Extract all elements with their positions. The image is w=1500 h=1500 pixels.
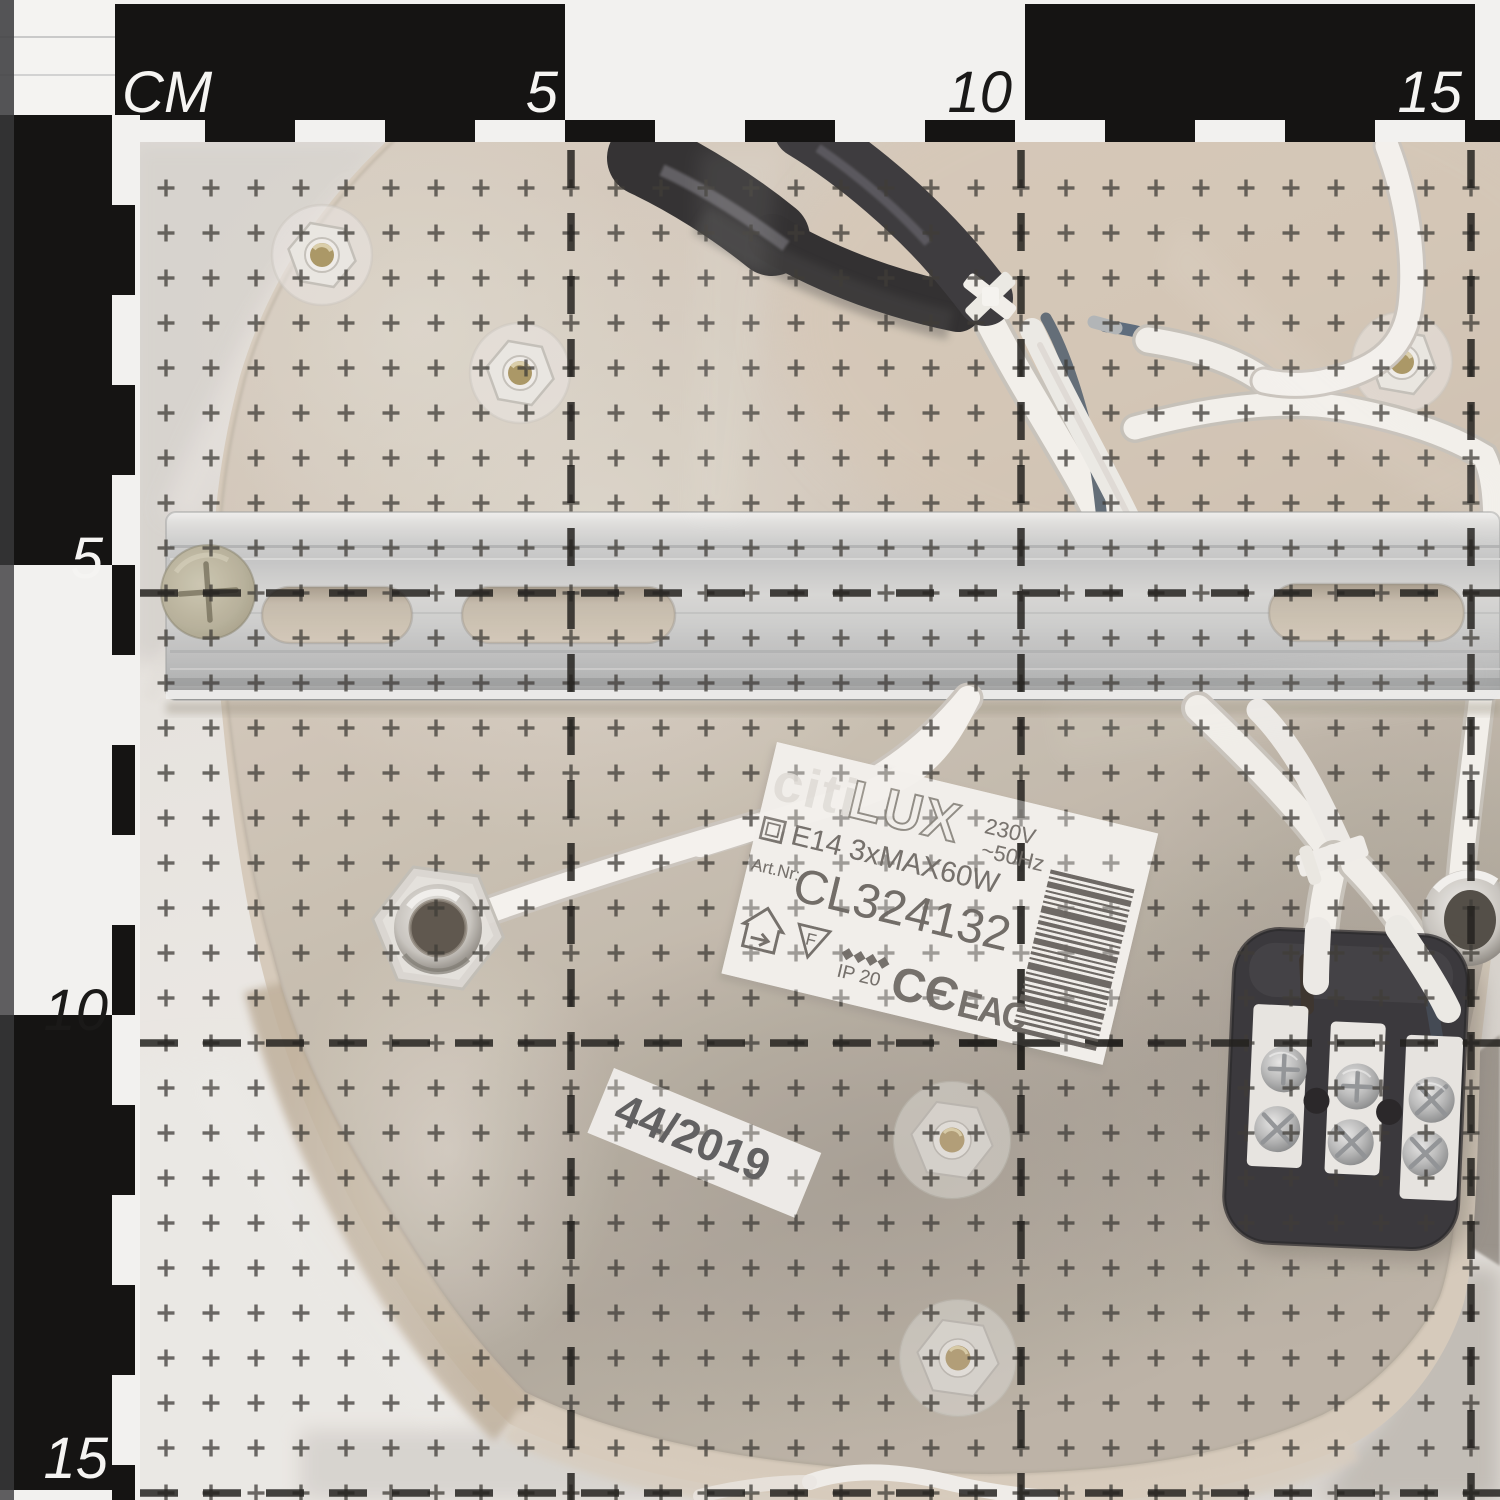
svg-text:10: 10 (43, 978, 108, 1043)
svg-text:15: 15 (43, 1426, 108, 1491)
svg-text:5: 5 (526, 60, 559, 125)
svg-text:10: 10 (947, 60, 1012, 125)
svg-text:15: 15 (1397, 60, 1462, 125)
svg-text:5: 5 (71, 526, 104, 591)
